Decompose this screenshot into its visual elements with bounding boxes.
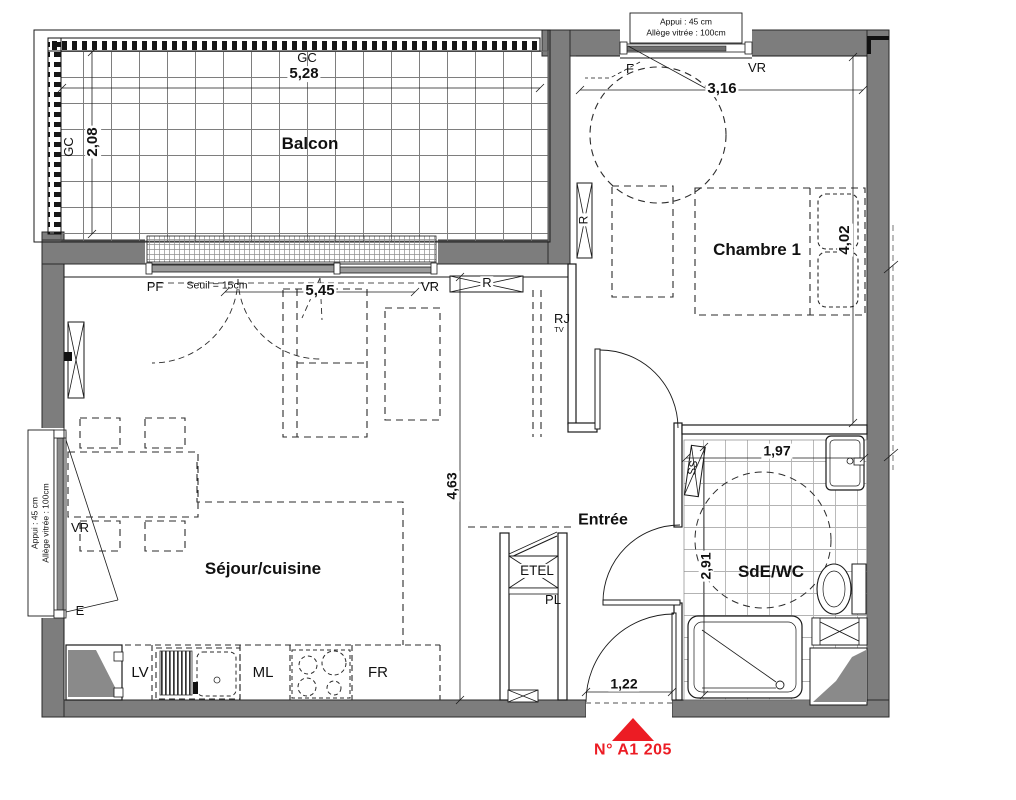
kitchen-zone-line (197, 462, 403, 645)
washbasin (826, 436, 864, 490)
partition-bedroom-left (568, 264, 576, 424)
pf-sliding-leaf-1 (150, 265, 336, 272)
pf-sliding-leaf-2 (338, 267, 434, 273)
partition-etel-left (500, 533, 509, 700)
room-label-balcony: Balcon (282, 135, 339, 153)
chair (145, 418, 185, 448)
rj-label: RJ (554, 312, 570, 326)
shower-tray (688, 616, 802, 698)
radiator-valve (64, 352, 72, 361)
dim-label-bedroom-width: 3,16 (705, 81, 738, 97)
tap (193, 682, 198, 694)
window-sash (626, 46, 726, 51)
drainboard (160, 651, 192, 695)
dishwasher-label: LV (131, 665, 148, 681)
tv-unit (533, 290, 541, 437)
radiator-living-left (64, 322, 84, 398)
appliance-slot (812, 618, 867, 645)
wall-bedroom-left (548, 30, 570, 264)
window-e-label: E (76, 604, 85, 618)
window-note-line1: Appui : 45 cm (30, 483, 41, 562)
opening-entry-door (586, 698, 672, 719)
window-sash (57, 438, 63, 610)
window-note-line1: Appui : 45 cm (646, 17, 725, 28)
etel-label: ETEL (518, 564, 556, 578)
pf-label: PF (147, 280, 164, 294)
window-note-line2: Allège vitrée : 100cm (41, 483, 52, 562)
balcony-railing-top (48, 38, 540, 51)
chair (145, 521, 185, 551)
dim-label-living-width: 5,45 (303, 283, 336, 299)
dim-label-entry-door: 1,22 (608, 677, 639, 692)
partition-bath-top (682, 425, 867, 434)
floor-plan: Balcon GC 5,28 GC 2,08 Appui : 45 cm All… (0, 0, 1016, 800)
window-f-label: F (626, 62, 634, 76)
unit-number-label: N° A1 205 (594, 743, 672, 760)
pf-threshold (147, 236, 436, 262)
shutter-label-pf: VR (421, 280, 439, 294)
chair (80, 418, 120, 448)
corner-soffit (66, 645, 123, 700)
room-label-bathroom: SdE/WC (738, 563, 804, 581)
closet-label: PL (545, 593, 561, 607)
wall-bottom-left (42, 700, 586, 717)
window-note-left: Appui : 45 cm Allège vitrée : 100cm (30, 483, 53, 562)
unit-marker-triangle (612, 718, 654, 741)
window-note-top: Appui : 45 cm Allège vitrée : 100cm (646, 17, 725, 40)
dim-label-balcony-width: 5,28 (287, 66, 320, 82)
toilet (817, 564, 866, 614)
shutter-label-bedroom: VR (748, 61, 766, 75)
window-note-line2: Allège vitrée : 100cm (646, 28, 725, 39)
dim-label-bath-width: 1,97 (761, 444, 792, 459)
partition-etel-right (558, 533, 567, 700)
threshold-label: Seuil = 15cm (187, 280, 248, 291)
radiator-label-living: R (480, 276, 493, 290)
fridge-label: FR (368, 665, 388, 681)
cooktop (292, 650, 350, 698)
coffee-table (385, 308, 440, 420)
pf-window (145, 236, 438, 283)
bathroom-door (603, 525, 680, 605)
room-label-entry: Entrée (578, 513, 628, 530)
dim-label-bath-depth: 2,91 (699, 550, 714, 581)
partition-bedroom-bottom-stub (568, 423, 597, 432)
washer-label: ML (253, 665, 274, 681)
shutter-label-left: VR (71, 521, 89, 535)
floor-plan-drawing (0, 0, 1016, 800)
sofa (283, 289, 367, 437)
wall-right (867, 30, 889, 717)
gc-label-left: GC (62, 137, 76, 157)
room-label-bedroom: Chambre 1 (713, 241, 801, 259)
soffit (810, 648, 867, 705)
dim-label-balcony-depth: 2,08 (85, 125, 101, 158)
room-label-living: Séjour/cuisine (205, 560, 321, 578)
etel-door (509, 532, 557, 558)
partition-bath-left-upper (674, 423, 682, 527)
kitchen-sink (193, 652, 236, 696)
balcony-railing-left (48, 38, 61, 234)
tv-label: TV (554, 326, 564, 334)
bedroom-door (595, 349, 678, 429)
radiator-label-bedroom: R (578, 214, 591, 227)
dim-label-living-depth: 4,63 (445, 470, 460, 501)
dim-label-bedroom-depth: 4,02 (837, 223, 853, 256)
gc-label-top: GC (297, 51, 317, 65)
